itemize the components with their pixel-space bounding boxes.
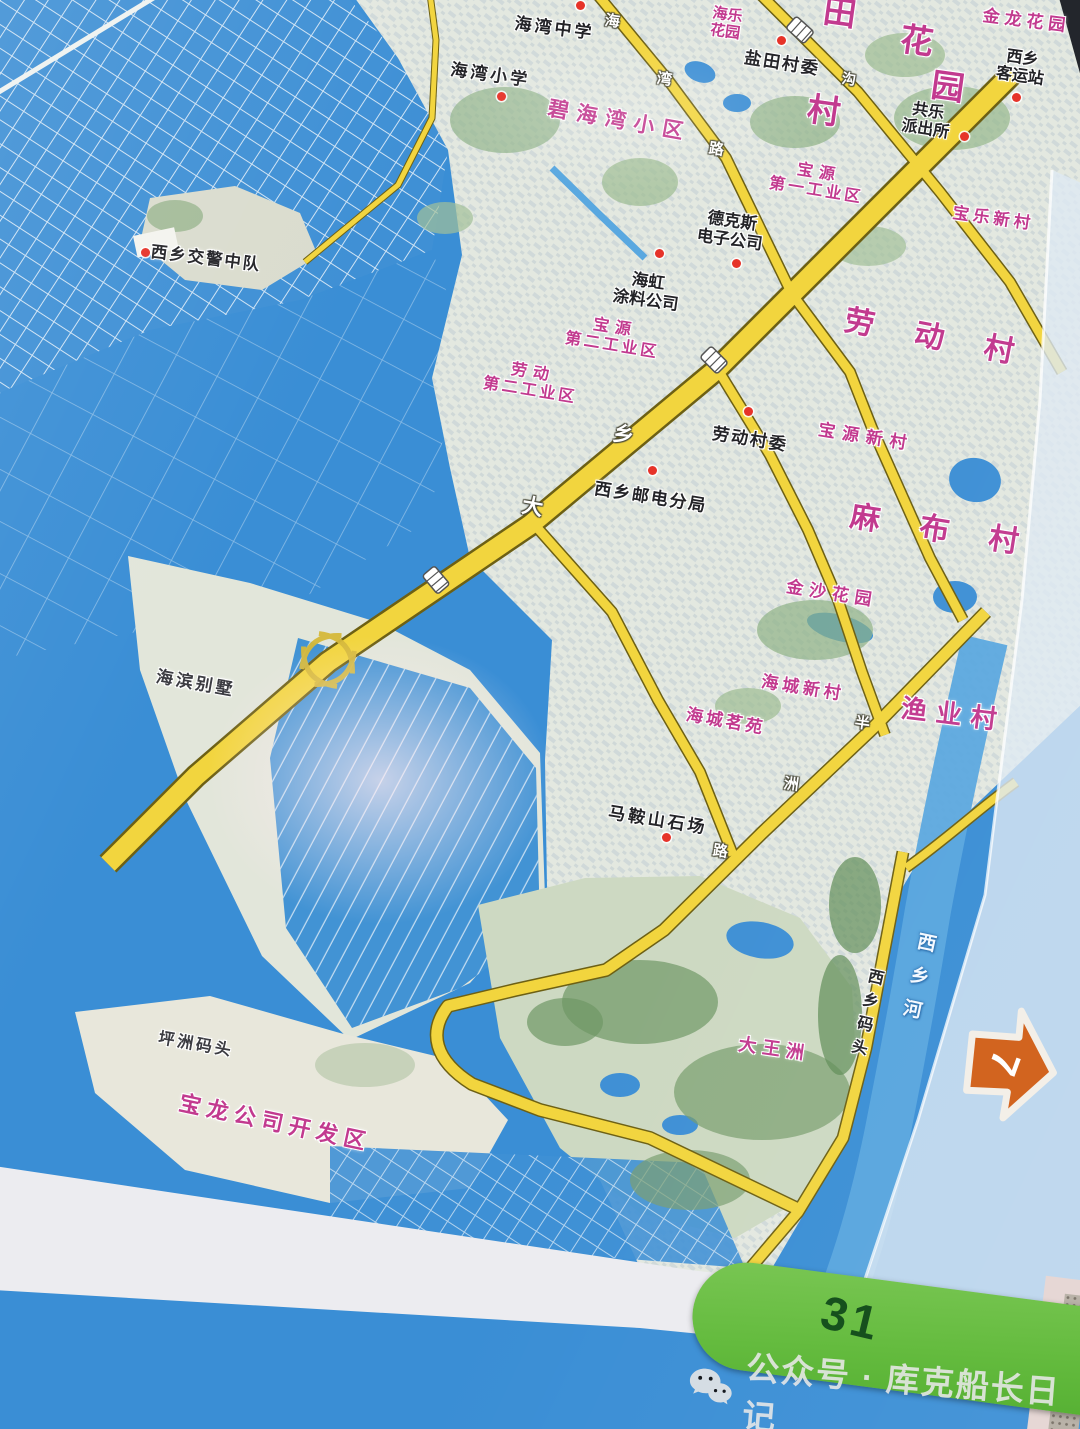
- poi-dot: [576, 1, 585, 10]
- poi-dot: [655, 249, 664, 258]
- poi-dot: [777, 36, 786, 45]
- road-char-wan: 湾: [656, 70, 673, 89]
- road-char-da: 大: [520, 494, 545, 521]
- poi-dot: [732, 259, 741, 268]
- poi-dot: [141, 248, 150, 257]
- road-char-zhou: 洲: [783, 775, 800, 794]
- poi-dot: [1012, 93, 1021, 102]
- label-frag-cun: 村: [805, 90, 843, 132]
- label-frag-yuan: 园: [929, 66, 967, 108]
- poi-dot: [497, 92, 506, 101]
- road-char-gou: 沟: [841, 70, 857, 88]
- road-char-hai: 海: [604, 12, 621, 31]
- wechat-icon: [687, 1365, 734, 1408]
- road-char-ban: 半: [854, 714, 871, 733]
- poi-dot: [960, 132, 969, 141]
- poi-dot: [648, 466, 657, 475]
- label-frag-tian: 田: [821, 0, 859, 34]
- page-number: 31: [816, 1284, 887, 1352]
- map-photo-stage: 海湾中学 海湾小学 盐田村委 共乐 派出所 西乡 客运站 德克斯 电子公司 海虹…: [0, 0, 1080, 1429]
- road-char-lu2: 路: [712, 842, 729, 861]
- poi-dot: [662, 833, 671, 842]
- road-char-lu: 路: [708, 140, 725, 159]
- road-char-xiang: 乡: [611, 422, 636, 449]
- poi-dot: [744, 407, 753, 416]
- label-frag-hua: 花: [898, 20, 936, 62]
